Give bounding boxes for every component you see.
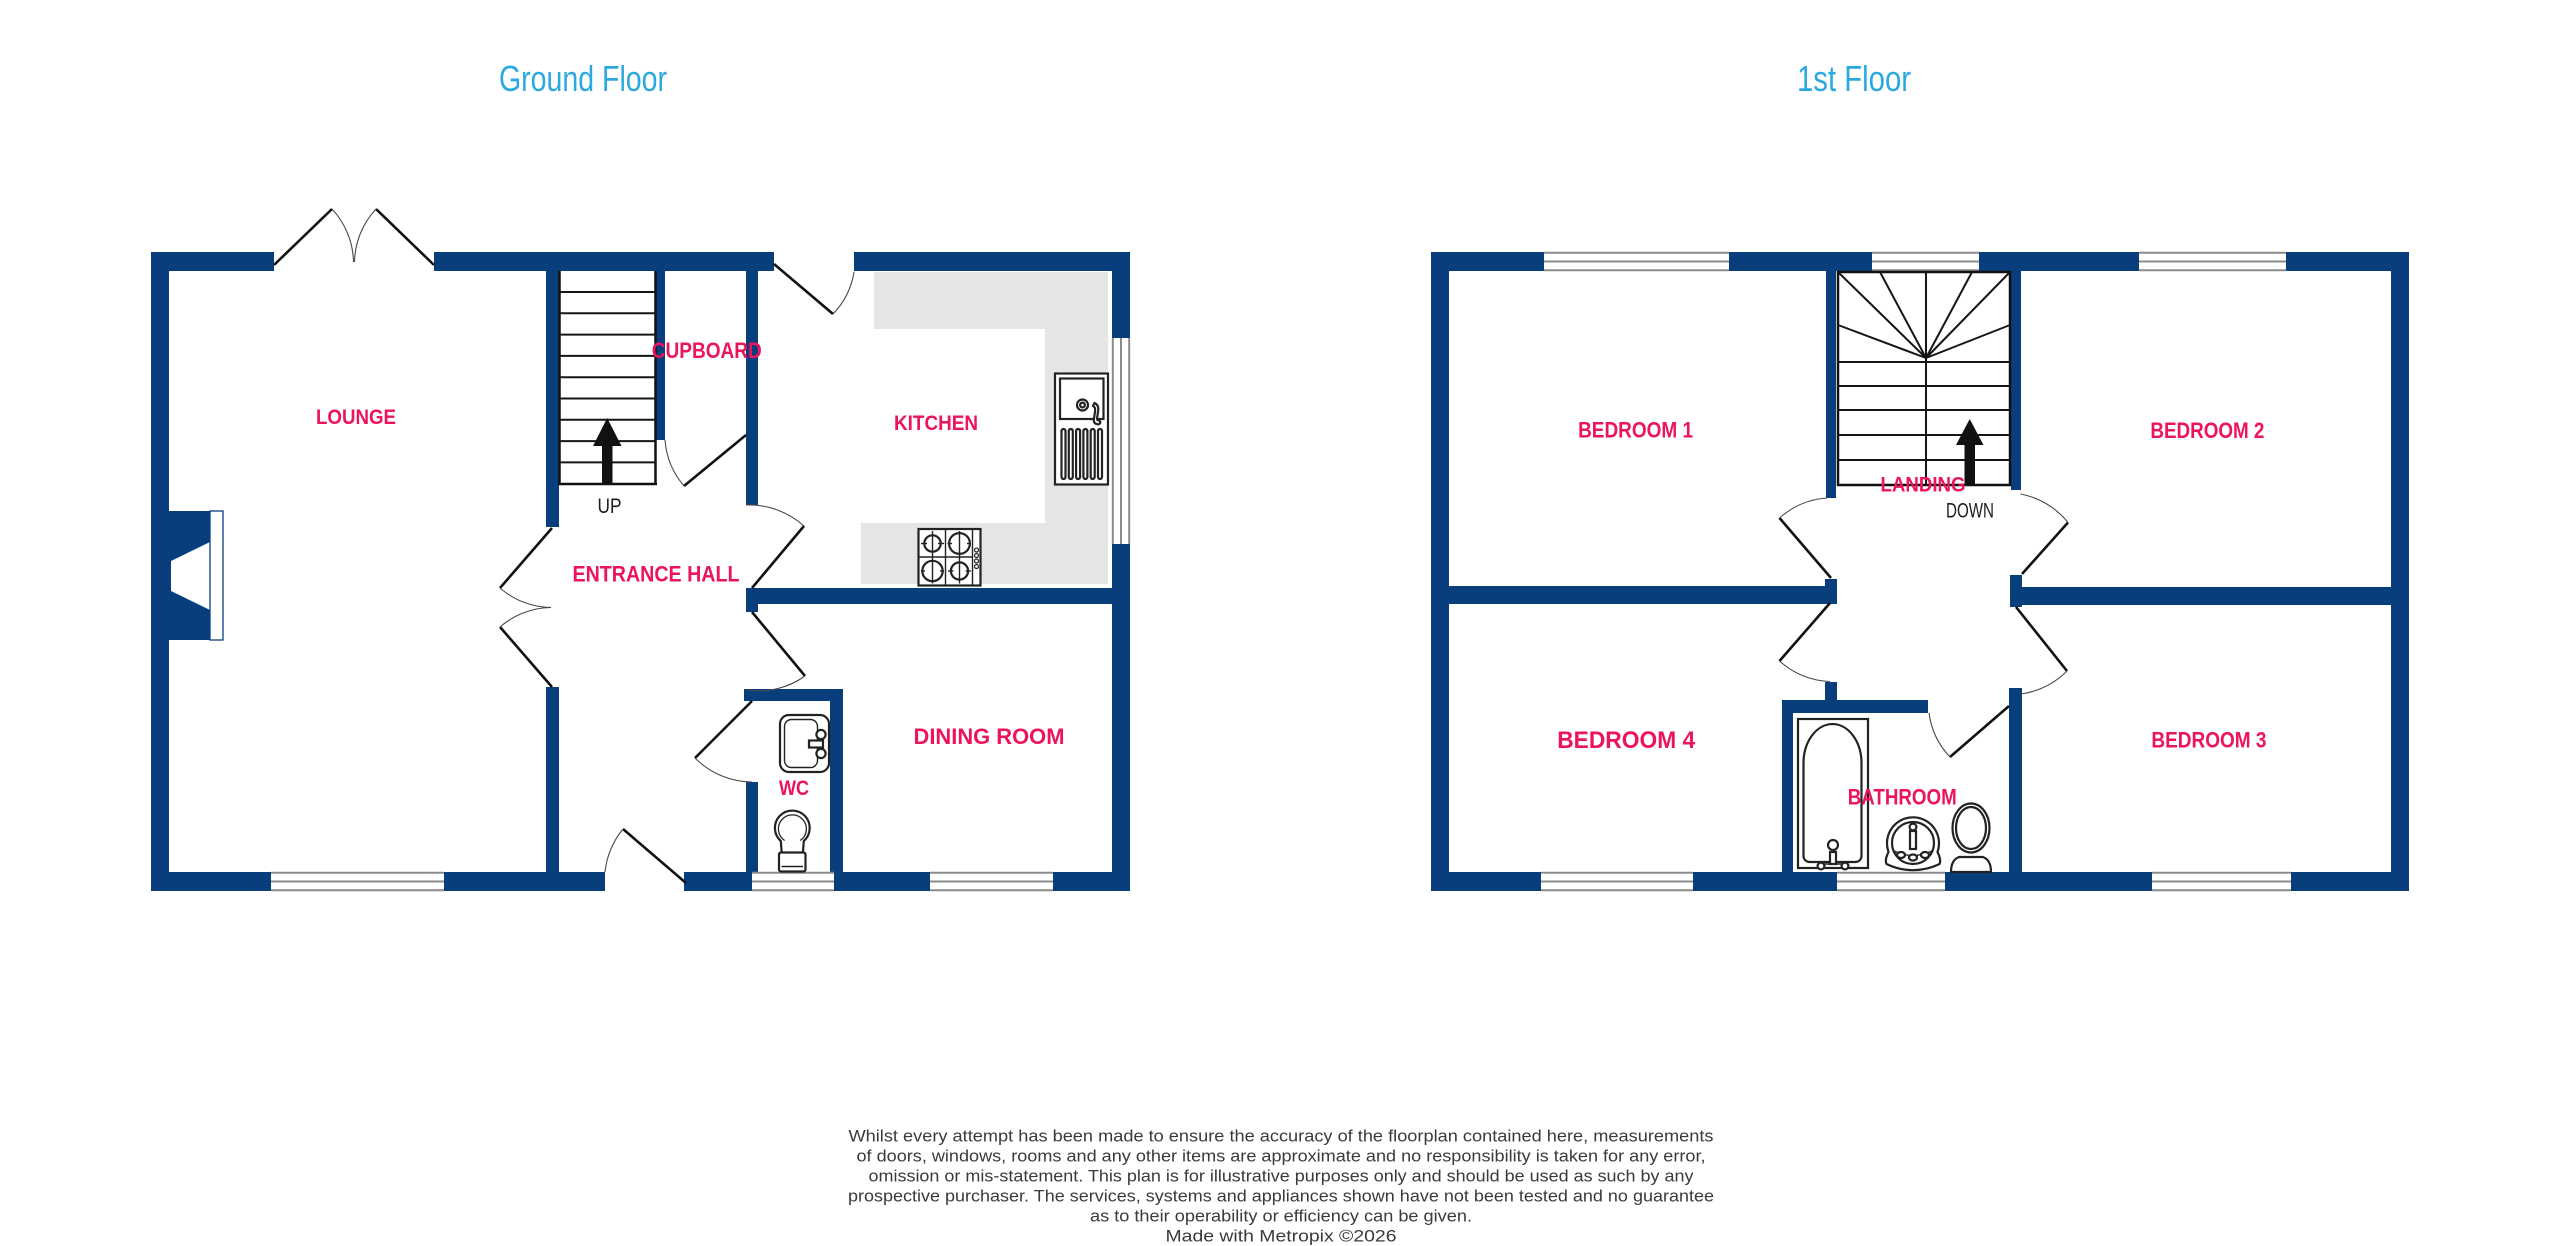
svg-text:of doors, windows, rooms and a: of doors, windows, rooms and any other i… (857, 1147, 1706, 1166)
svg-text:CUPBOARD: CUPBOARD (652, 338, 762, 363)
svg-text:UP: UP (598, 494, 622, 518)
svg-text:Whilst every attempt has been: Whilst every attempt has been made to en… (849, 1127, 1714, 1146)
svg-text:BEDROOM 1: BEDROOM 1 (1578, 418, 1693, 443)
svg-text:Made with Metropix ©2026: Made with Metropix ©2026 (1166, 1227, 1397, 1246)
svg-text:as to their operability or eff: as to their operability or efficiency ca… (1090, 1207, 1472, 1226)
svg-text:Ground Floor: Ground Floor (499, 58, 667, 99)
svg-text:1st Floor: 1st Floor (1797, 58, 1911, 99)
svg-text:KITCHEN: KITCHEN (894, 412, 978, 435)
svg-text:BATHROOM: BATHROOM (1848, 785, 1957, 810)
svg-text:WC: WC (779, 775, 809, 800)
svg-text:BEDROOM 2: BEDROOM 2 (2150, 418, 2264, 443)
svg-text:omission or mis-statement. Thi: omission or mis-statement. This plan is … (869, 1167, 1695, 1186)
svg-text:DINING ROOM: DINING ROOM (914, 724, 1065, 749)
svg-text:DOWN: DOWN (1946, 499, 1994, 523)
svg-text:LANDING: LANDING (1881, 473, 1966, 497)
svg-text:ENTRANCE HALL: ENTRANCE HALL (573, 562, 740, 587)
svg-text:LOUNGE: LOUNGE (316, 404, 396, 429)
svg-text:BEDROOM 4: BEDROOM 4 (1557, 727, 1696, 754)
svg-text:BEDROOM 3: BEDROOM 3 (2151, 728, 2266, 753)
svg-text:prospective purchaser. The ser: prospective purchaser. The services, sys… (848, 1187, 1714, 1206)
